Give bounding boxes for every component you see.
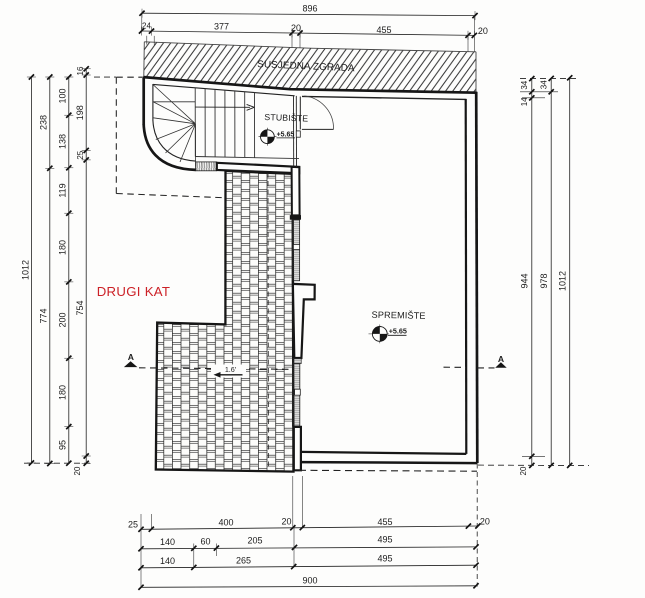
svg-text:138: 138: [58, 134, 68, 149]
svg-text:978: 978: [539, 273, 549, 288]
svg-text:774: 774: [39, 308, 49, 323]
svg-text:900: 900: [302, 576, 317, 586]
svg-text:A: A: [498, 354, 504, 364]
svg-text:198: 198: [75, 105, 85, 120]
svg-text:200: 200: [58, 312, 68, 327]
svg-text:20: 20: [519, 466, 528, 475]
svg-text:25: 25: [76, 150, 85, 159]
svg-text:100: 100: [58, 88, 68, 103]
svg-text:60: 60: [200, 537, 210, 547]
svg-text:140: 140: [160, 556, 175, 566]
svg-text:119: 119: [58, 183, 68, 197]
svg-text:1.6': 1.6': [225, 365, 237, 374]
svg-text:265: 265: [236, 555, 251, 565]
svg-text:896: 896: [302, 4, 317, 14]
svg-text:16: 16: [76, 66, 85, 75]
svg-text:20: 20: [480, 517, 490, 527]
svg-text:1012: 1012: [558, 271, 568, 291]
svg-text:495: 495: [377, 554, 392, 564]
svg-text:944: 944: [520, 273, 530, 288]
svg-text:400: 400: [218, 518, 233, 528]
svg-text:25: 25: [128, 520, 138, 530]
svg-text:14: 14: [520, 97, 529, 106]
svg-text:34: 34: [520, 80, 529, 89]
svg-text:140: 140: [160, 537, 175, 547]
svg-text:455: 455: [377, 517, 392, 527]
svg-text:180: 180: [58, 385, 68, 400]
svg-text:377: 377: [214, 22, 229, 32]
svg-text:34: 34: [540, 80, 549, 89]
svg-text:495: 495: [377, 535, 392, 545]
svg-text:+5.65: +5.65: [389, 327, 407, 336]
svg-text:1012: 1012: [20, 260, 30, 280]
svg-text:20: 20: [73, 466, 82, 475]
svg-text:STUBIŠTE: STUBIŠTE: [264, 112, 308, 124]
svg-text:20: 20: [281, 517, 291, 527]
svg-text:455: 455: [376, 25, 391, 35]
svg-text:754: 754: [75, 300, 85, 315]
svg-text:205: 205: [247, 536, 262, 546]
svg-text:SPREMIŠTE: SPREMIŠTE: [371, 310, 425, 321]
svg-text:24: 24: [142, 22, 151, 31]
svg-text:238: 238: [39, 115, 49, 130]
svg-text:+5.65: +5.65: [277, 131, 295, 138]
svg-text:20: 20: [478, 26, 488, 36]
svg-text:DRUGI KAT: DRUGI KAT: [97, 284, 171, 299]
svg-text:95: 95: [58, 440, 68, 450]
svg-text:180: 180: [58, 240, 68, 255]
svg-text:A: A: [128, 352, 134, 362]
svg-text:20: 20: [291, 23, 301, 33]
